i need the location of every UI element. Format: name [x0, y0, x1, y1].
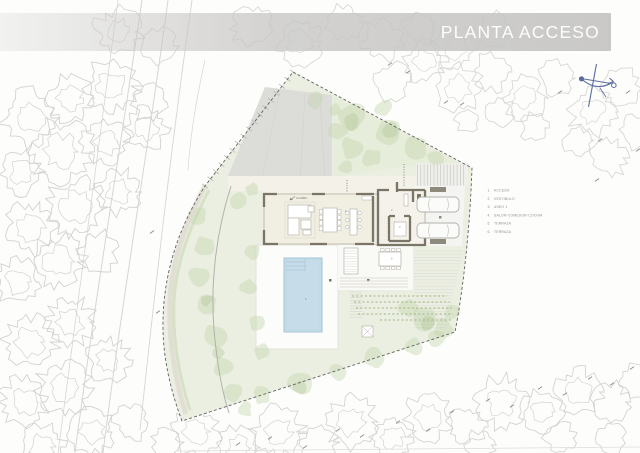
legend-item-label: TERRAZA: [494, 222, 512, 226]
entry-label: ACCESO: [296, 196, 307, 200]
architectural-plan-sheet: ACCESO 1.ACCESO2.VESTIBULO3.ASEO 14.SALO…: [0, 0, 640, 453]
ramp-stripes: [418, 165, 464, 186]
legend-item-number: 3.: [488, 205, 491, 209]
contour-line: [178, 447, 640, 451]
legend-item-label: TERRAZA: [494, 230, 512, 234]
legend-item-number: 1.: [488, 189, 491, 193]
legend-item-number: 6.: [488, 230, 491, 234]
legend-item-number: 4.: [488, 213, 491, 217]
site-plan-drawing: ACCESO 1.ACCESO2.VESTIBULO3.ASEO 14.SALO…: [0, 0, 640, 453]
swimming-pool: [284, 258, 322, 332]
living-room-floor: [263, 193, 374, 245]
legend-item-label: VESTIBULO: [494, 197, 515, 201]
legend-item-label: ACCESO: [494, 189, 510, 193]
legend-item-label: SALON-COMEDOR-COCINA: [494, 213, 543, 217]
legend-item-label: ASEO 1: [494, 205, 507, 209]
legend-item-number: 2.: [488, 197, 491, 201]
title-banner: PLANTA ACCESO: [0, 13, 611, 51]
legend-item-number: 5.: [488, 222, 491, 226]
page-title: PLANTA ACCESO: [441, 22, 600, 43]
